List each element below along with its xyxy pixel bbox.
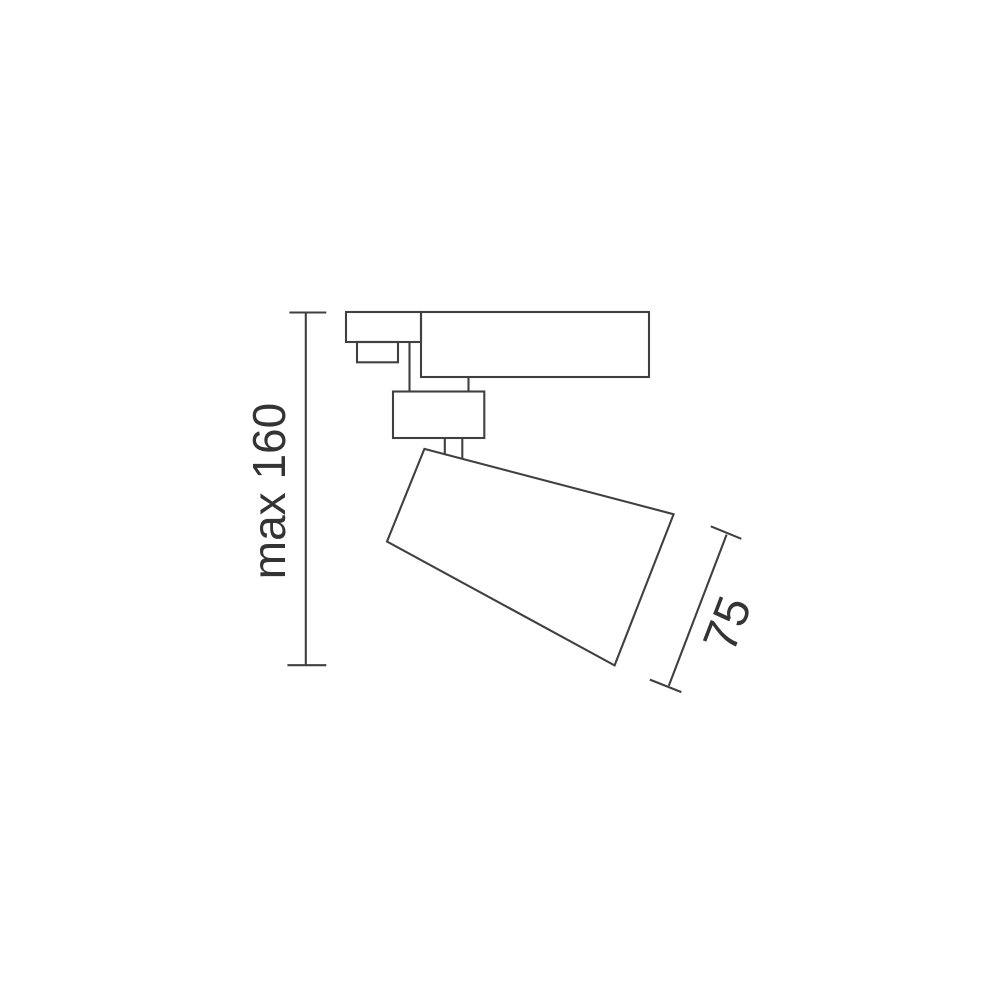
svg-text:75: 75 bbox=[694, 590, 763, 659]
svg-text:max 160: max 160 bbox=[243, 403, 295, 579]
